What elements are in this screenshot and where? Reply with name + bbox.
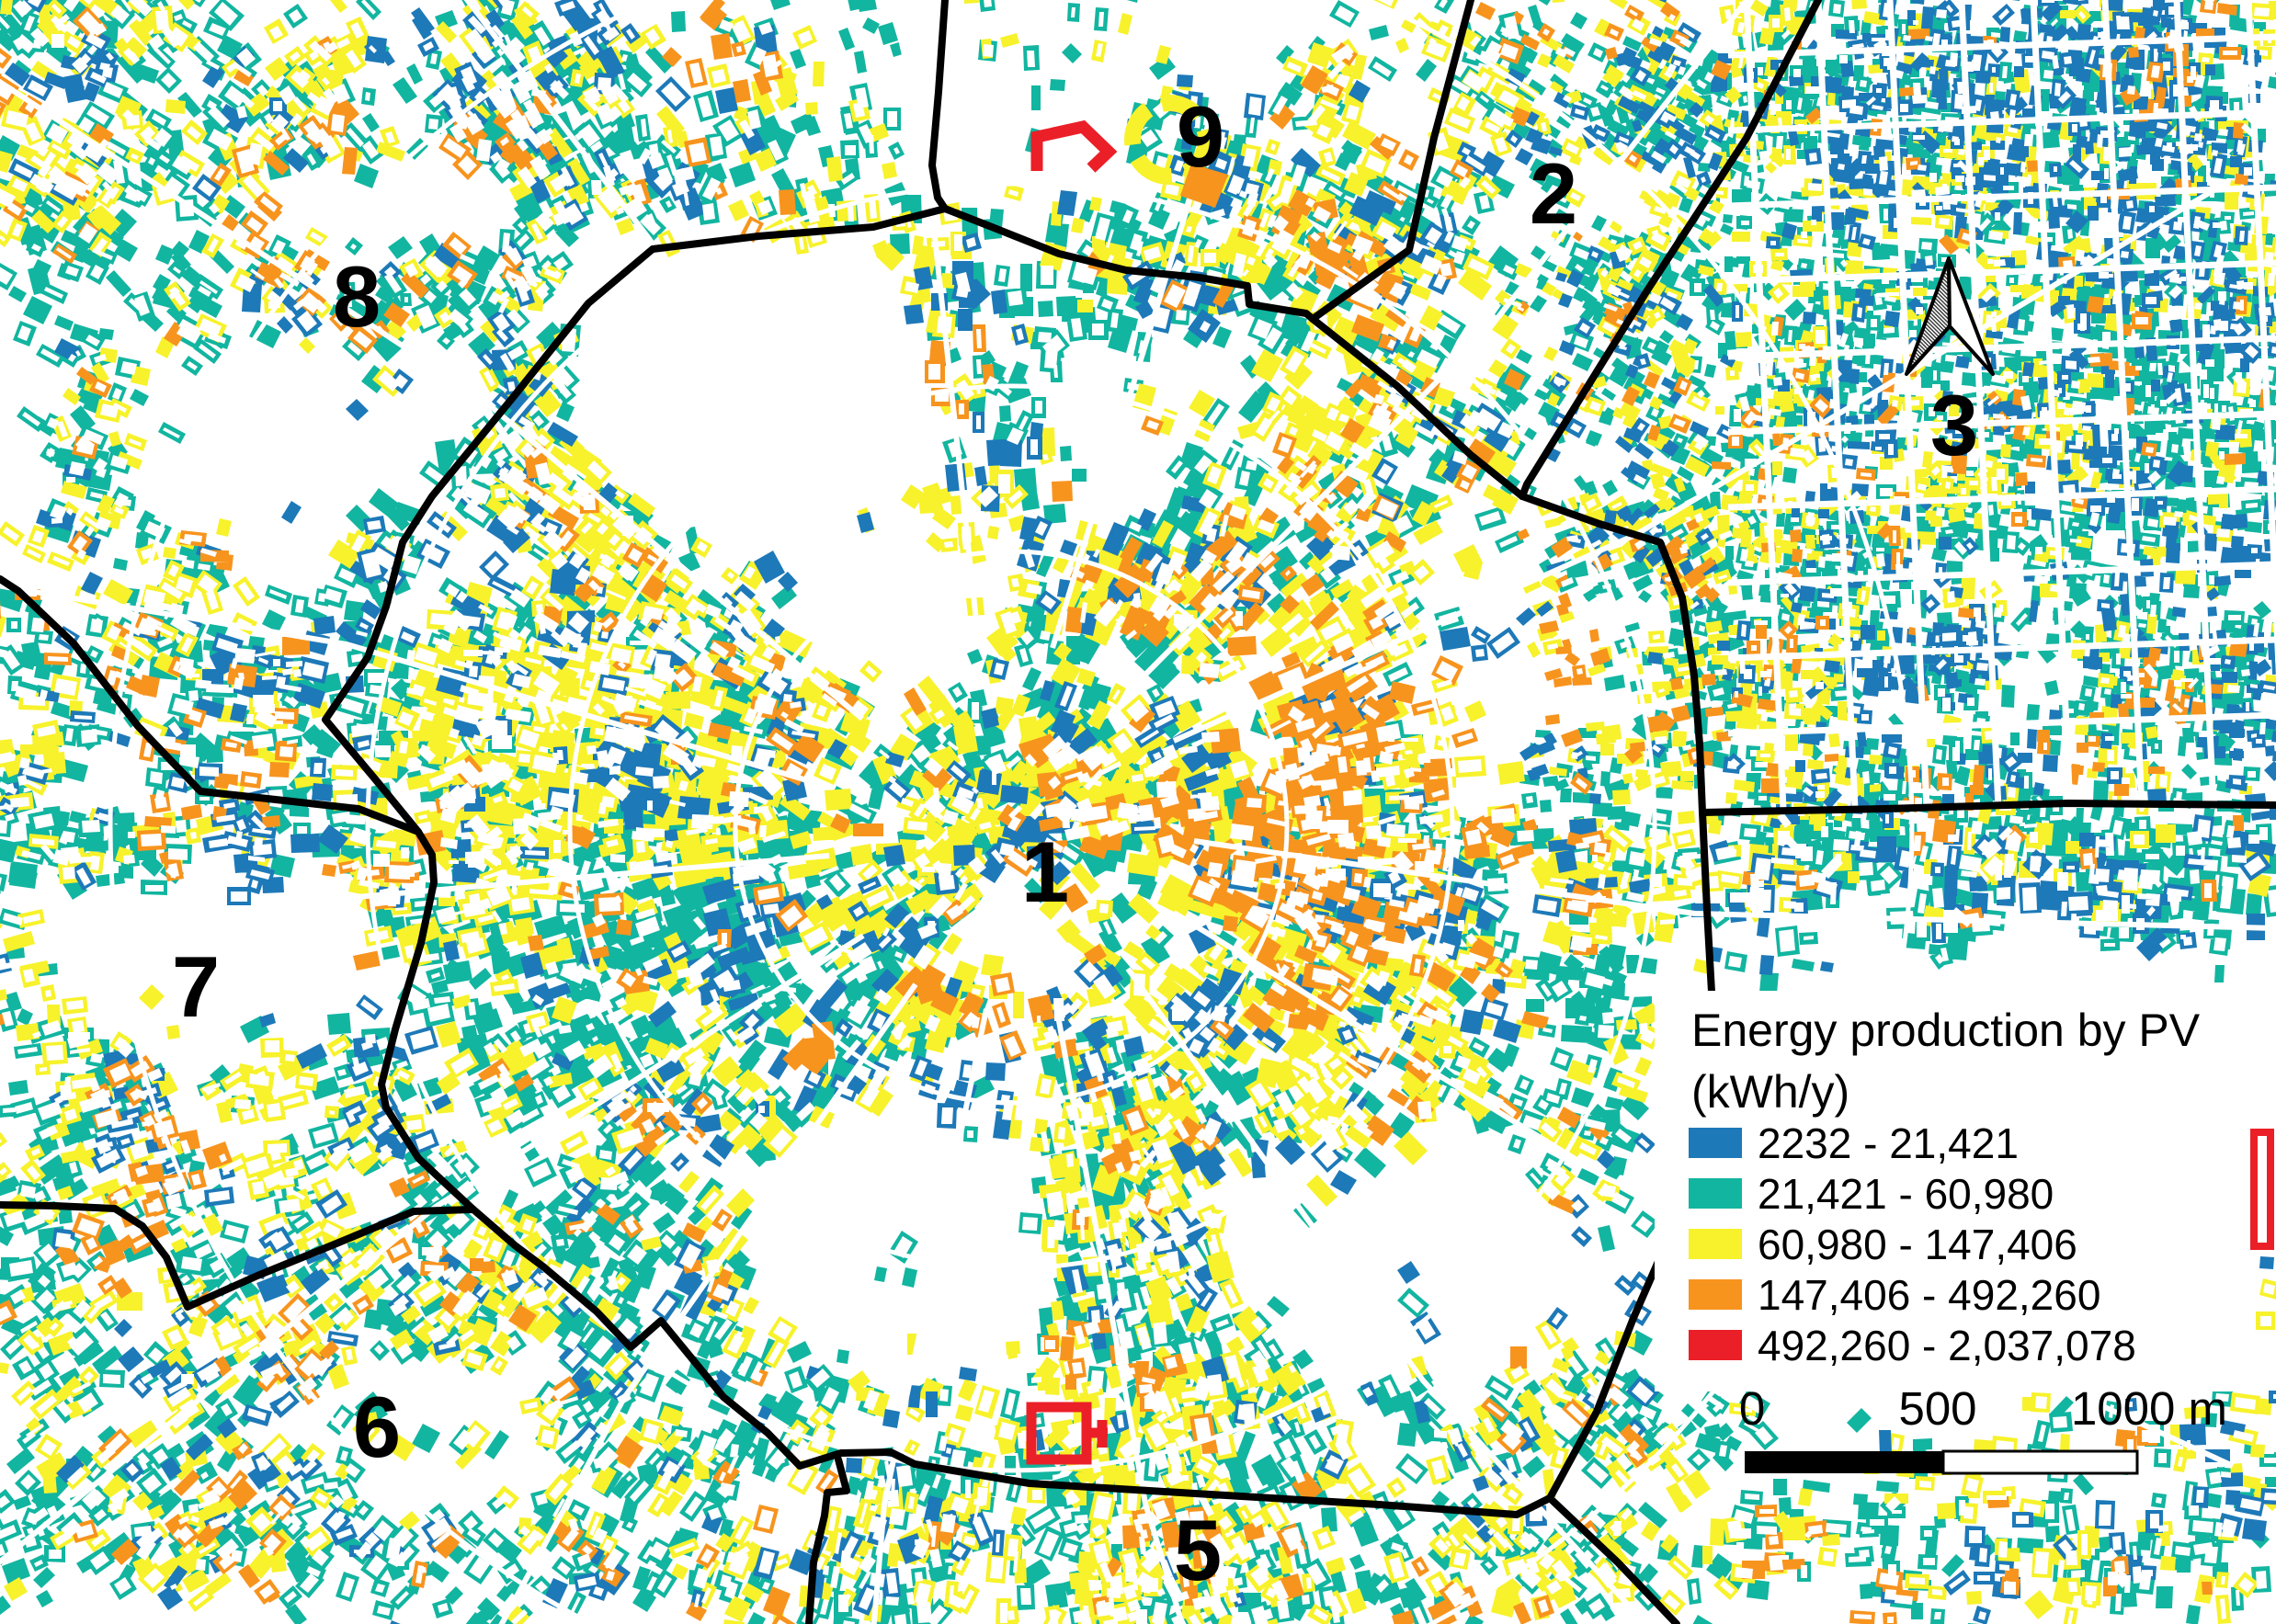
svg-text:60,980 - 147,406: 60,980 - 147,406 bbox=[1758, 1221, 2077, 1268]
svg-text:21,421 - 60,980: 21,421 - 60,980 bbox=[1758, 1170, 2054, 1218]
svg-text:2232 - 21,421: 2232 - 21,421 bbox=[1758, 1119, 2019, 1167]
svg-text:3: 3 bbox=[1930, 377, 1978, 473]
svg-text:2: 2 bbox=[1530, 145, 1577, 242]
svg-text:9: 9 bbox=[1177, 88, 1224, 185]
svg-text:(kWh/y): (kWh/y) bbox=[1691, 1066, 1849, 1118]
svg-text:1: 1 bbox=[1021, 823, 1069, 920]
svg-text:492,260 - 2,037,078: 492,260 - 2,037,078 bbox=[1758, 1322, 2136, 1369]
svg-text:6: 6 bbox=[353, 1379, 401, 1475]
svg-text:7: 7 bbox=[172, 938, 220, 1035]
svg-text:500: 500 bbox=[1898, 1382, 1976, 1435]
svg-text:5: 5 bbox=[1174, 1502, 1222, 1598]
svg-text:8: 8 bbox=[333, 248, 381, 345]
svg-text:Energy production by PV: Energy production by PV bbox=[1691, 1005, 2201, 1056]
svg-text:147,406 - 492,260: 147,406 - 492,260 bbox=[1758, 1271, 2100, 1319]
svg-text:1000 m: 1000 m bbox=[2071, 1382, 2227, 1435]
svg-text:0: 0 bbox=[1739, 1382, 1765, 1435]
